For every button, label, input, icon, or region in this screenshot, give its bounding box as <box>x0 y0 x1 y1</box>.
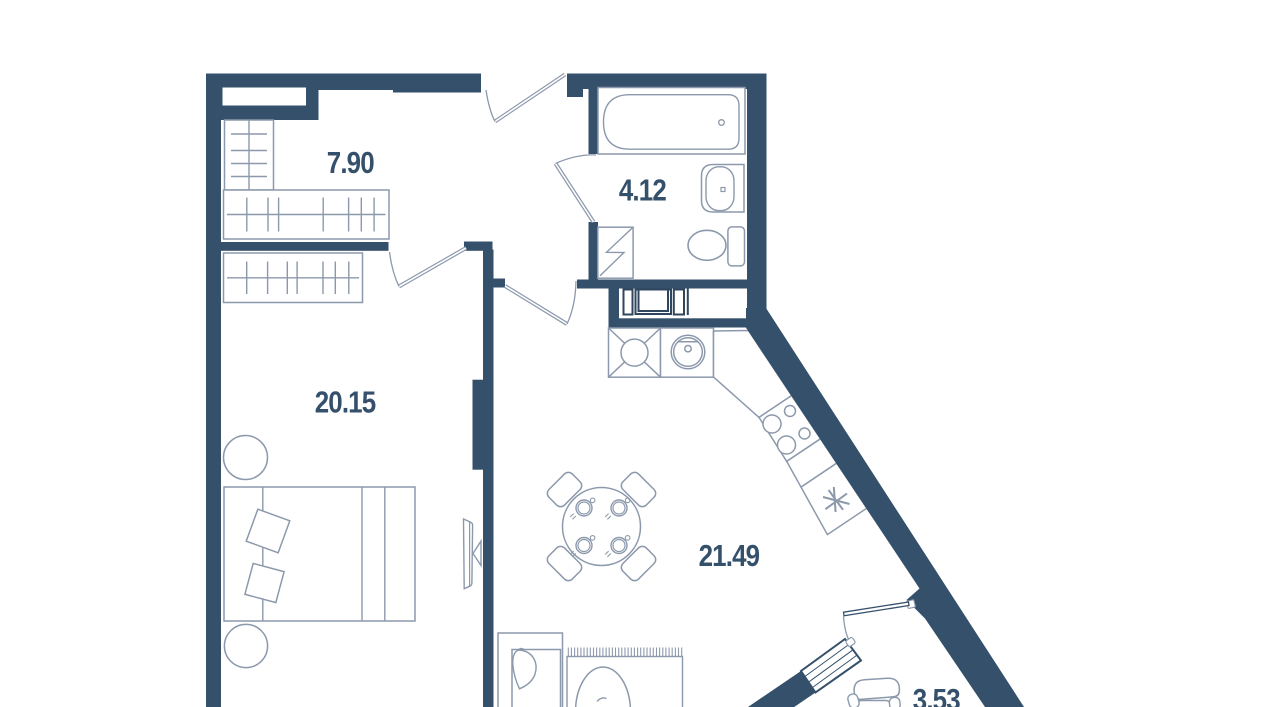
svg-text:21.49: 21.49 <box>699 538 760 572</box>
svg-text:4.12: 4.12 <box>619 172 666 206</box>
svg-text:20.15: 20.15 <box>315 384 376 418</box>
svg-text:7.90: 7.90 <box>327 145 374 179</box>
svg-text:3.53: 3.53 <box>913 682 960 707</box>
